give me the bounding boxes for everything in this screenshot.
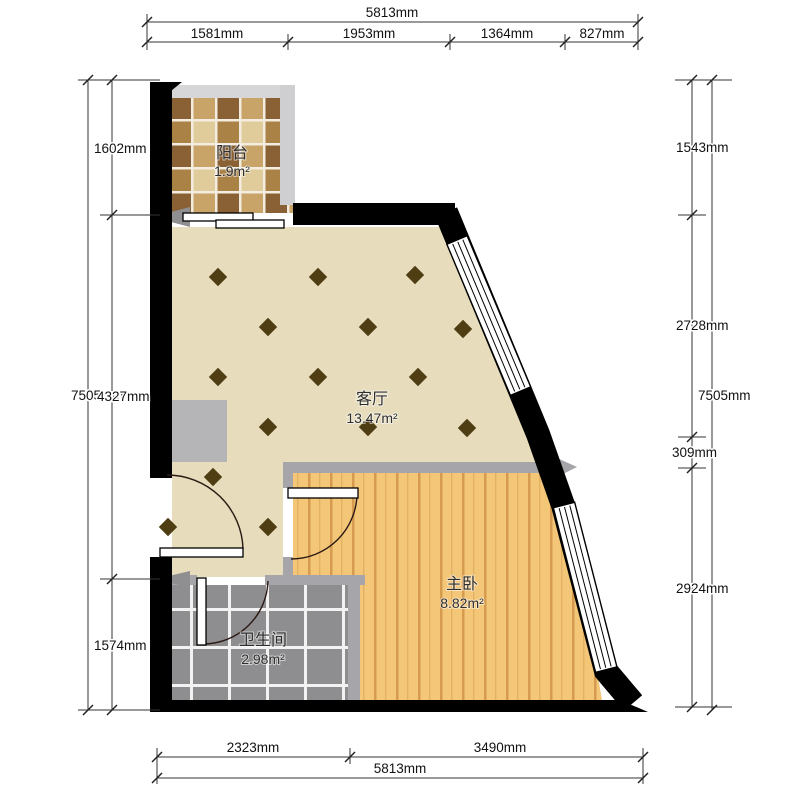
- dim-bottom-total: 5813mm: [374, 761, 427, 776]
- dim-right-seg1: 1543mm: [676, 140, 729, 155]
- balcony-label: 阳台: [216, 144, 248, 162]
- dim-top-total: 5813mm: [366, 5, 419, 20]
- dim-top-seg4: 827mm: [579, 26, 624, 41]
- bathroom-right-wall: [348, 585, 360, 700]
- floor-plan-page: 阳台 1.9m² 客厅 13.47m² 主卧 8.82m² 卫生间 2.98m²: [0, 0, 800, 800]
- dim-right-seg2: 2728mm: [676, 318, 729, 333]
- bedroom-area: 8.82m²: [440, 595, 484, 611]
- bedroom-label: 主卧: [446, 575, 478, 593]
- dim-right-seg3: 309mm: [672, 445, 717, 460]
- dim-top-seg2: 1953mm: [343, 26, 396, 41]
- storage-shaft-block: [172, 400, 227, 462]
- dim-right-total: 7505mm: [698, 388, 751, 403]
- dim-left-seg1: 1602mm: [94, 141, 147, 156]
- balcony-right-wall: [280, 85, 295, 205]
- dim-right-seg4: 2924mm: [676, 581, 729, 596]
- balcony-area: 1.9m²: [214, 163, 250, 179]
- dim-top-seg1: 1581mm: [191, 26, 244, 41]
- dim-left-seg3: 1574mm: [94, 638, 147, 653]
- dim-bottom-seg1: 2323mm: [227, 740, 280, 755]
- living-room-label: 客厅: [356, 390, 388, 408]
- bathroom-area: 2.98m²: [241, 651, 285, 667]
- floor-plan-canvas: 阳台 1.9m² 客厅 13.47m² 主卧 8.82m² 卫生间 2.98m²: [0, 0, 800, 800]
- balcony-sliding-window: [183, 213, 284, 228]
- balcony-top-rail: [172, 85, 280, 98]
- living-room-area: 13.47m²: [346, 410, 398, 426]
- dim-bottom-seg2: 3490mm: [474, 740, 527, 755]
- bathroom-label: 卫生间: [239, 631, 287, 649]
- dim-top-seg3: 1364mm: [481, 26, 534, 41]
- dim-left-seg2: 4327mm: [97, 389, 150, 404]
